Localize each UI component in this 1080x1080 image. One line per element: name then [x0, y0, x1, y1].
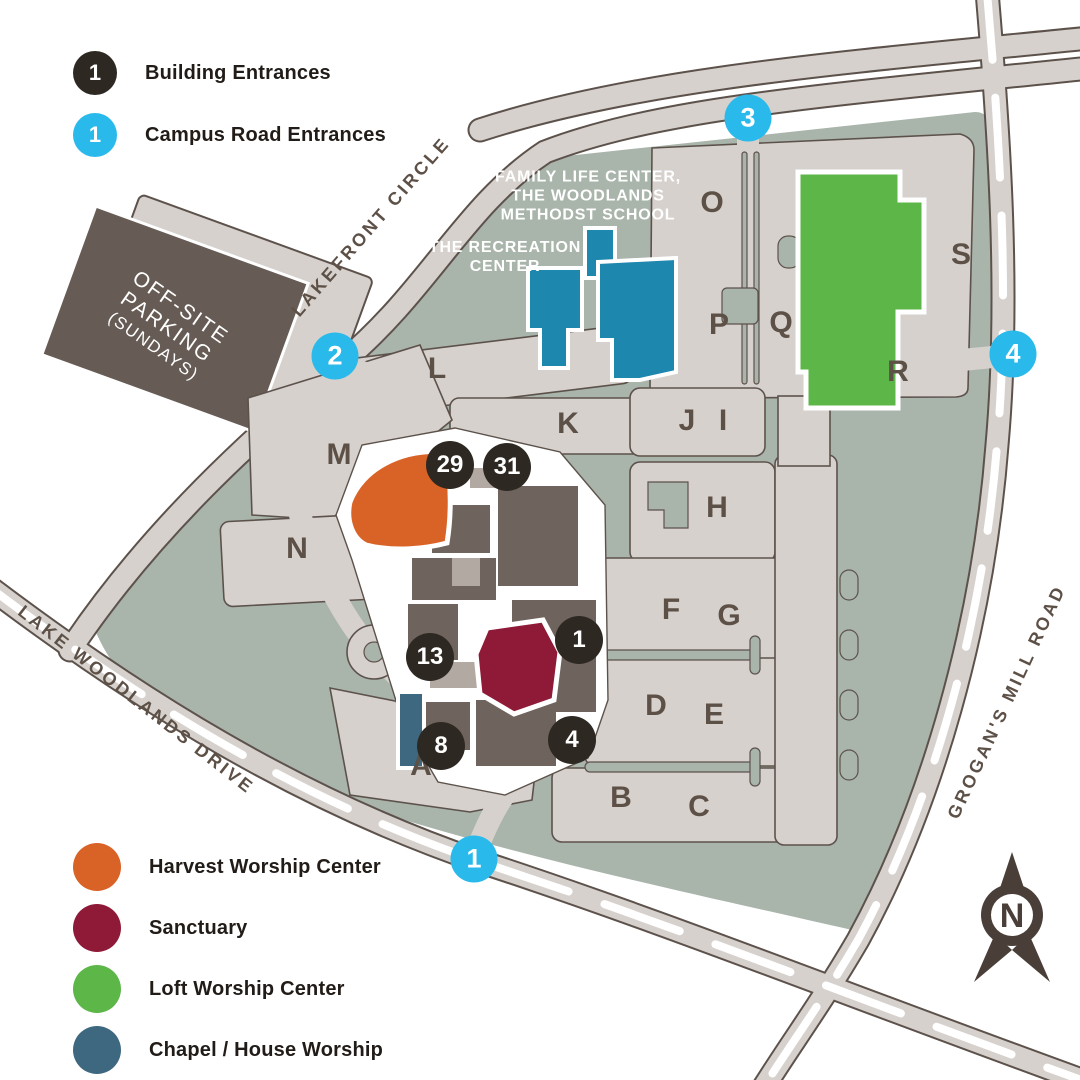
color-swatch — [73, 1026, 121, 1074]
lot-letter-R: R — [887, 355, 909, 389]
legend-row-chapel-house-worship: Chapel / House Worship — [73, 1026, 383, 1074]
legend-label: Sanctuary — [149, 917, 248, 940]
lot-letter-S: S — [951, 238, 971, 272]
lot-letter-O: O — [700, 186, 723, 220]
legend-label: Building Entrances — [145, 62, 331, 85]
lot-letter-Q: Q — [769, 306, 792, 340]
legend-row-harvest-worship-center: Harvest Worship Center — [73, 843, 383, 891]
grogans-mill-road-label: GROGAN'S MILL ROAD — [943, 582, 1070, 823]
building-entrance-badge: 1 — [73, 51, 117, 95]
building-entrance-marker-1: 1 — [555, 616, 603, 664]
road-entrance-badge: 1 — [73, 113, 117, 157]
lot-letter-I: I — [719, 404, 727, 438]
lake-woodlands-drive-label: LAKE WOODLANDS DRIVE — [14, 601, 259, 799]
road-entrance-marker-4: 4 — [990, 331, 1037, 378]
recreation-center-label: THE RECREATIONCENTER — [429, 238, 581, 276]
family-life-center-label: FAMILY LIFE CENTER,THE WOODLANDSMETHODST… — [495, 168, 681, 225]
building-entrance-marker-31: 31 — [483, 443, 531, 491]
buildings-legend: Harvest Worship CenterSanctuaryLoft Wors… — [73, 843, 383, 1074]
legend-row-building-entrances: 1Building Entrances — [73, 51, 386, 95]
legend-label: Chapel / House Worship — [149, 1039, 383, 1062]
color-swatch — [73, 965, 121, 1013]
campus-map: N OFF-SITE PARKING (SUNDAYS) 29311138412… — [0, 0, 1080, 1080]
color-swatch — [73, 904, 121, 952]
lot-letter-D: D — [645, 689, 667, 723]
lot-letter-P: P — [709, 308, 729, 342]
legend-label: Campus Road Entrances — [145, 124, 386, 147]
lot-letter-M: M — [327, 438, 352, 472]
building-entrance-marker-13: 13 — [406, 633, 454, 681]
entrances-legend: 1Building Entrances1Campus Road Entrance… — [73, 51, 386, 157]
offsite-parking-label: OFF-SITE PARKING (SUNDAYS) — [101, 266, 233, 387]
lot-letter-G: G — [717, 599, 740, 633]
road-entrance-marker-1: 1 — [451, 836, 498, 883]
lot-letter-H: H — [706, 491, 728, 525]
road-entrance-marker-3: 3 — [725, 95, 772, 142]
lakefront-circle-label: LAKEFRONT CIRCLE — [287, 133, 454, 321]
legend-row-sanctuary: Sanctuary — [73, 904, 383, 952]
building-entrance-marker-8: 8 — [417, 722, 465, 770]
lot-letter-E: E — [704, 698, 724, 732]
legend-label: Harvest Worship Center — [149, 856, 381, 879]
lot-letter-J: J — [679, 404, 696, 438]
building-entrance-marker-29: 29 — [426, 441, 474, 489]
building-entrance-marker-4: 4 — [548, 716, 596, 764]
lot-letter-B: B — [610, 781, 632, 815]
color-swatch — [73, 843, 121, 891]
road-entrance-marker-2: 2 — [312, 333, 359, 380]
legend-row-loft-worship-center: Loft Worship Center — [73, 965, 383, 1013]
legend-label: Loft Worship Center — [149, 978, 345, 1001]
lot-letter-L: L — [428, 352, 446, 386]
lot-letter-K: K — [557, 407, 579, 441]
lot-letter-N: N — [286, 532, 308, 566]
lot-letter-F: F — [662, 593, 680, 627]
lot-letter-C: C — [688, 790, 710, 824]
legend-row-campus-road-entrances: 1Campus Road Entrances — [73, 113, 386, 157]
